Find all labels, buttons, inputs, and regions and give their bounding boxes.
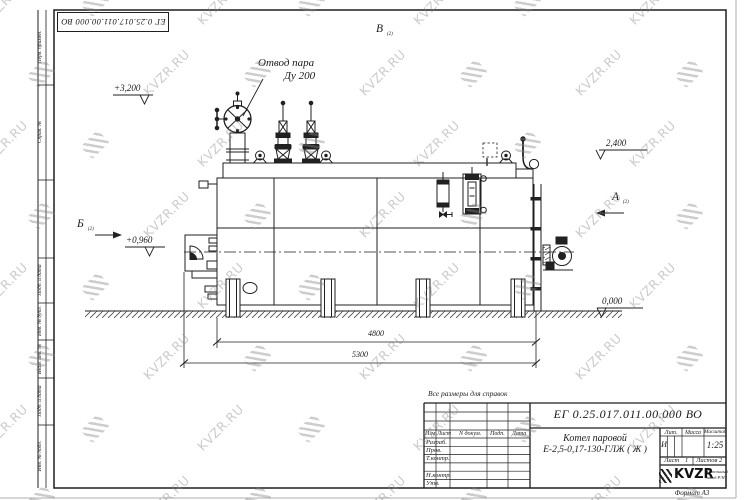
- view-label-v-sub: (2): [387, 32, 393, 37]
- tb-doc-number: ЕГ 0.25.017.011.00.000 ВО: [532, 408, 724, 420]
- tb-lit-label: Лит.: [660, 430, 682, 436]
- tb-col-izm: Изм: [425, 431, 435, 437]
- tb-sheets-label: Листов: [696, 458, 717, 465]
- steam-outlet-dn: Ду 200: [284, 71, 315, 82]
- tb-row-utv: Утв.: [426, 481, 440, 488]
- view-label-a: А: [612, 192, 619, 204]
- tb-lit-value: И: [660, 441, 668, 449]
- tb-mass-label: Масса: [682, 430, 704, 436]
- tb-col-ndokum: N докум.: [459, 431, 481, 437]
- tb-col-podp: Подп.: [490, 431, 505, 437]
- margin-perv-primen: Перв. примен.: [38, 11, 44, 83]
- tb-name-1: Котел паровой: [532, 434, 658, 444]
- view-label-a-sub: (2): [623, 200, 629, 205]
- tb-name-2: Е-2,5-0,17-130-ГЛЖ ( Ж ): [532, 446, 658, 456]
- dim-4800: 4800: [368, 330, 384, 338]
- kvzr-logo-icon: [659, 469, 672, 483]
- format-label: Формат А3: [660, 490, 724, 497]
- elev-zero: 0,000: [602, 297, 622, 306]
- view-label-b-sub: (2): [88, 227, 94, 232]
- elev-burner: +0,960: [126, 236, 152, 245]
- view-label-b: Б: [77, 219, 84, 231]
- tb-sheets-value: 2: [719, 458, 722, 465]
- tb-scale-label: Масштаб: [704, 430, 726, 435]
- tb-row-prov: Пров.: [426, 448, 442, 455]
- tb-scale-value: 1:25: [704, 441, 726, 450]
- view-label-v: В: [376, 24, 383, 36]
- margin-sprav-no: Справ. №: [38, 96, 44, 168]
- tb-row-razrab: Разраб.: [426, 440, 447, 447]
- elev-top: +3,200: [114, 84, 140, 93]
- tb-row-nkontr: Н.контр.: [426, 473, 451, 480]
- kvzr-logo-sub1: Котельный: [706, 470, 728, 475]
- tb-sheet-value: 1: [685, 458, 688, 465]
- elev-rear: 2,400: [606, 139, 626, 148]
- tb-row-tkontr: Т.контр.: [426, 456, 450, 463]
- reference-note: Все размеры для справок: [428, 390, 508, 398]
- tb-sheet-label: Лист: [664, 458, 679, 465]
- drawing-sheet: KVZR.RUKVZR.RUKVZR.RUKVZR.RUKVZR.RUKVZR.…: [0, 0, 750, 500]
- kvzr-logo-sub2: завод РЭП: [706, 476, 726, 481]
- dim-5300: 5300: [352, 351, 368, 359]
- steam-outlet-label: Отвод пара: [258, 58, 314, 69]
- margin-inv-podl: Инв. № подл.: [38, 420, 44, 492]
- tb-col-data: Дата: [512, 431, 526, 437]
- tb-col-list: Лист: [437, 431, 451, 437]
